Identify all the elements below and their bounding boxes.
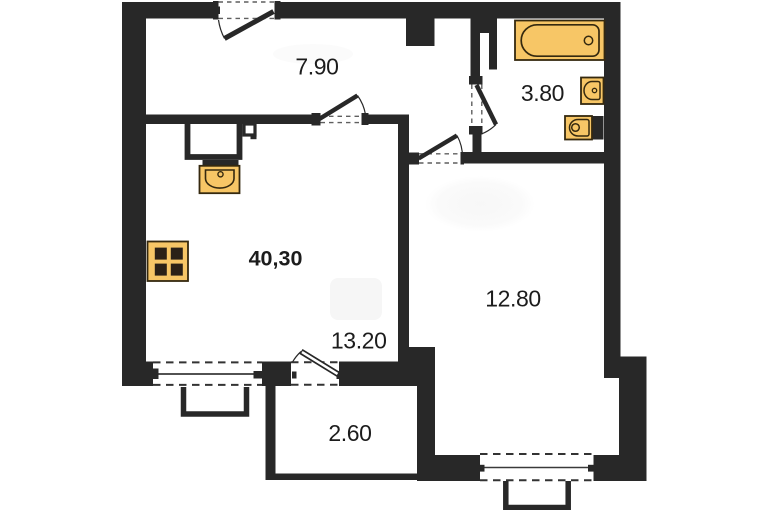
svg-text:40,30: 40,30 [249,247,303,271]
svg-text:3.80: 3.80 [521,80,564,106]
svg-text:7.90: 7.90 [295,54,338,80]
svg-text:2.60: 2.60 [328,420,371,446]
svg-text:12.80: 12.80 [485,286,541,312]
svg-text:13.20: 13.20 [331,328,387,354]
